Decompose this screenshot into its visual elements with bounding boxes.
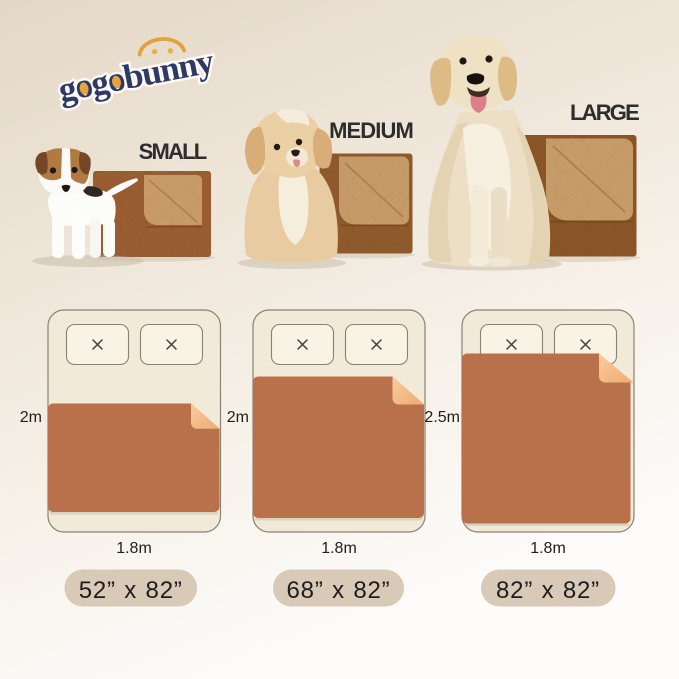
- svg-text:2.5m: 2.5m: [424, 409, 460, 426]
- svg-text:1.8m: 1.8m: [116, 540, 152, 557]
- svg-text:SMALL: SMALL: [139, 139, 207, 164]
- svg-text:2m: 2m: [20, 409, 42, 426]
- svg-text:68” x 82”: 68” x 82”: [287, 577, 391, 604]
- svg-text:LARGE: LARGE: [570, 100, 639, 125]
- svg-text:1.8m: 1.8m: [321, 540, 357, 557]
- svg-text:MEDIUM: MEDIUM: [329, 118, 413, 143]
- svg-text:82” x 82”: 82” x 82”: [496, 577, 600, 604]
- svg-text:1.8m: 1.8m: [530, 540, 566, 557]
- svg-text:2m: 2m: [227, 409, 249, 426]
- svg-text:52” x 82”: 52” x 82”: [79, 577, 183, 604]
